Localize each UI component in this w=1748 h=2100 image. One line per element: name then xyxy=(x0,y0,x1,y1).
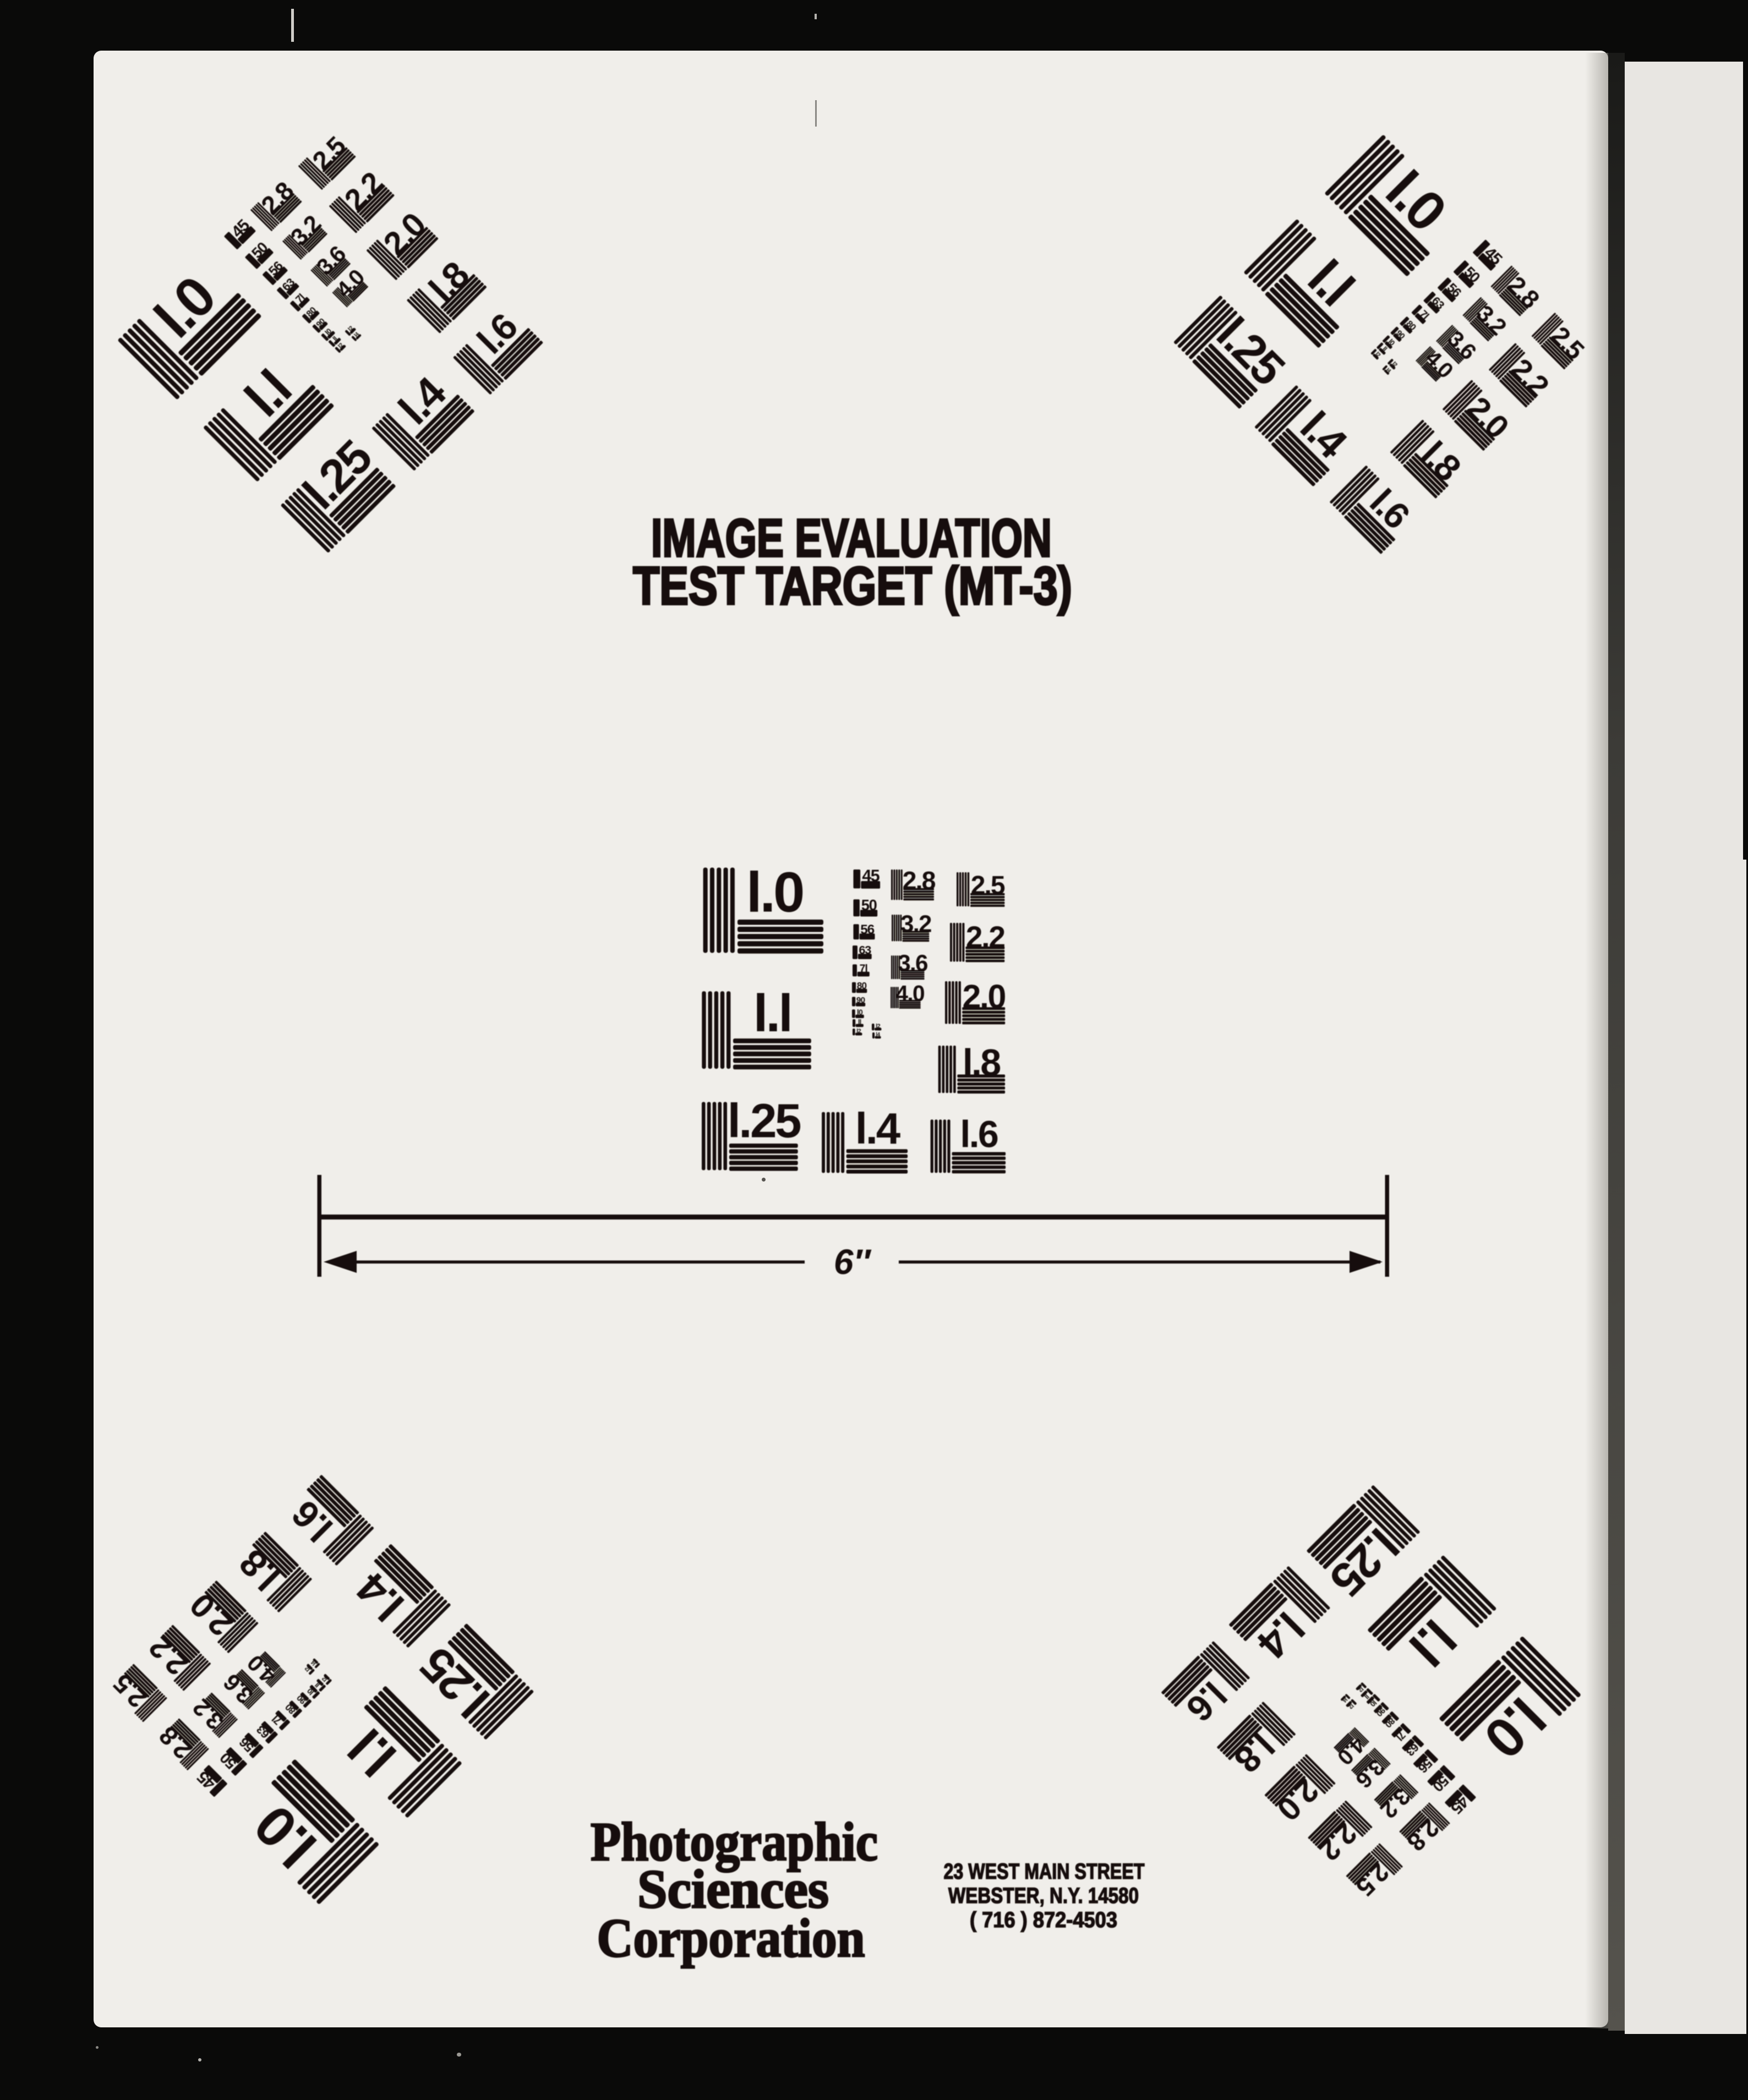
svg-text:Corporation: Corporation xyxy=(597,1907,865,1968)
svg-text:6″: 6″ xyxy=(834,1242,872,1282)
svg-text:TEST TARGET (MT-3): TEST TARGET (MT-3) xyxy=(633,556,1072,616)
svg-text:WEBSTER, N.Y. 14580: WEBSTER, N.Y. 14580 xyxy=(948,1884,1139,1908)
svg-text:( 716 ) 872-4503: ( 716 ) 872-4503 xyxy=(970,1908,1117,1932)
svg-text:23 WEST MAIN STREET: 23 WEST MAIN STREET xyxy=(944,1860,1145,1884)
